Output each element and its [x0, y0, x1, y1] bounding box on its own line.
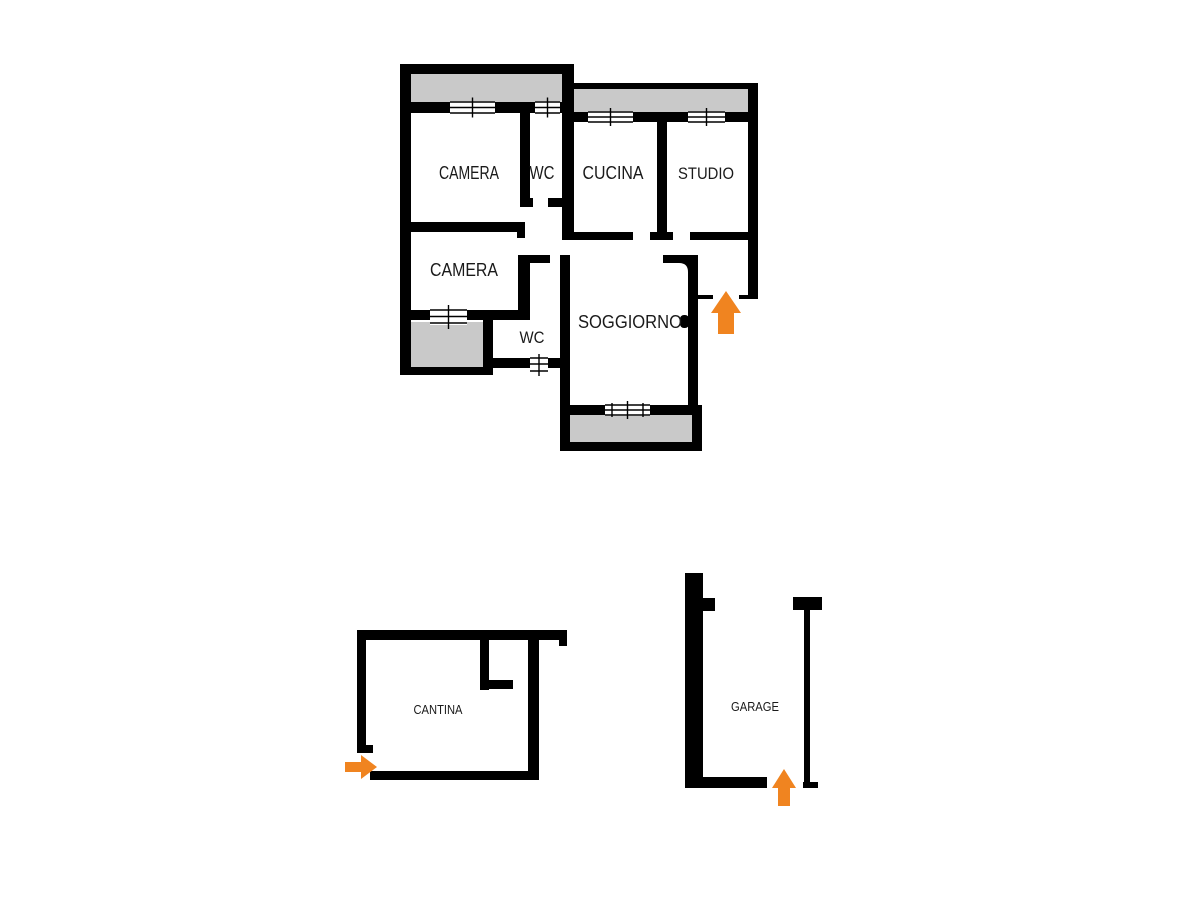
balcony-bottom-left — [411, 322, 483, 367]
garage-walls — [685, 573, 822, 788]
room-label-wc-top: WC — [530, 163, 555, 183]
balcony-soggiorno — [570, 415, 692, 442]
room-label-wc-bottom: WC — [520, 328, 545, 347]
apartment-plan: CAMERA WC CUCINA STUDIO CAMERA WC SOGGIO… — [400, 64, 758, 451]
room-label-camera-top: CAMERA — [439, 163, 499, 183]
window-icon — [530, 354, 548, 376]
balcony-top-right — [574, 89, 748, 112]
balcony-top-left — [411, 74, 562, 102]
entrance-arrow-icon — [711, 291, 741, 334]
floor-plan-canvas: CAMERA WC CUCINA STUDIO CAMERA WC SOGGIO… — [0, 0, 1200, 900]
entrance-arrow-icon — [772, 769, 796, 806]
room-label-studio: STUDIO — [678, 164, 734, 183]
floor-plan-page: CAMERA WC CUCINA STUDIO CAMERA WC SOGGIO… — [0, 0, 1200, 900]
room-label-cantina: CANTINA — [414, 703, 464, 717]
landing-thin-wall-right — [739, 295, 758, 299]
cantina-plan: CANTINA — [345, 630, 567, 780]
wall — [685, 573, 822, 788]
room-label-camera-bottom: CAMERA — [430, 260, 498, 280]
landing-thin-wall-left — [698, 295, 713, 299]
room-label-soggiorno: SOGGIORNO — [578, 312, 682, 332]
room-label-cucina: CUCINA — [583, 163, 644, 183]
window-icon — [605, 401, 650, 419]
garage-plan: GARAGE — [685, 573, 822, 806]
room-label-garage: GARAGE — [731, 700, 779, 714]
